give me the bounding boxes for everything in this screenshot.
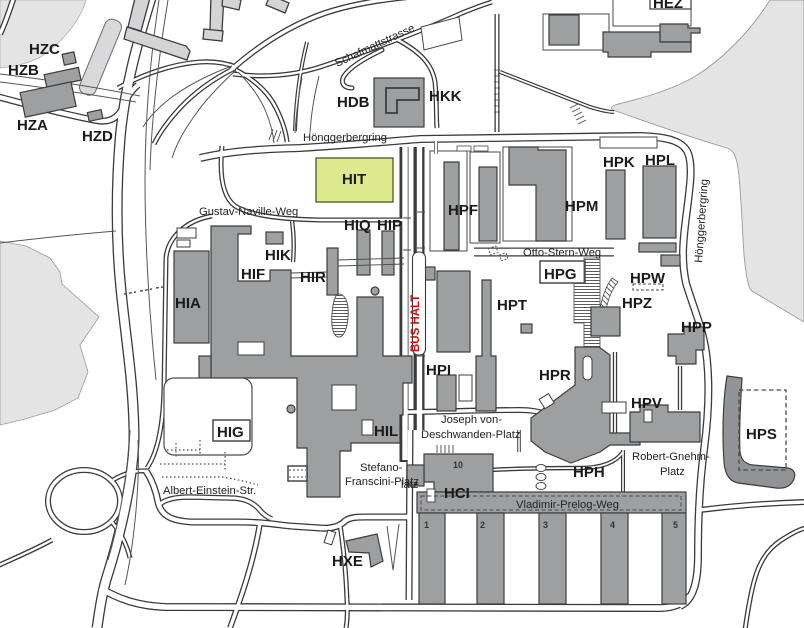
svg-text:HIP: HIP — [377, 217, 402, 234]
svg-text:HIR: HIR — [300, 269, 326, 286]
svg-text:HPH: HPH — [573, 464, 605, 481]
svg-text:HPR: HPR — [539, 367, 571, 384]
svg-text:3: 3 — [543, 520, 548, 530]
svg-text:HZB: HZB — [8, 62, 39, 79]
svg-text:HZA: HZA — [17, 117, 48, 134]
svg-text:Deschwanden-Platz: Deschwanden-Platz — [421, 429, 521, 441]
svg-text:HPF: HPF — [448, 202, 478, 219]
svg-text:HPK: HPK — [603, 154, 635, 171]
svg-text:HIT: HIT — [342, 171, 366, 188]
svg-text:HPT: HPT — [497, 297, 527, 314]
svg-text:HPZ: HPZ — [622, 295, 652, 312]
svg-text:Albert-Einstein-Str.: Albert-Einstein-Str. — [163, 485, 256, 497]
svg-text:HIK: HIK — [265, 247, 291, 264]
svg-text:HIF: HIF — [241, 266, 265, 283]
svg-text:BUS HALT: BUS HALT — [410, 295, 422, 352]
svg-text:HZD: HZD — [82, 128, 113, 145]
svg-text:Hönggerbergring: Hönggerbergring — [303, 132, 387, 144]
svg-text:HPL: HPL — [645, 152, 675, 169]
svg-text:HPW: HPW — [630, 270, 666, 287]
svg-text:Vladimir-Prelog-Weg: Vladimir-Prelog-Weg — [516, 499, 619, 511]
svg-text:Stefano-: Stefano- — [360, 462, 403, 474]
svg-text:4: 4 — [610, 520, 615, 530]
svg-text:latz: latz — [401, 479, 419, 491]
svg-text:HEZ: HEZ — [653, 0, 683, 12]
svg-text:Platz: Platz — [660, 466, 685, 478]
svg-text:HKK: HKK — [429, 88, 462, 105]
svg-text:HPG: HPG — [544, 266, 577, 283]
svg-text:5: 5 — [673, 520, 678, 530]
svg-text:Robert-Gnehm-: Robert-Gnehm- — [632, 451, 710, 463]
svg-text:HPS: HPS — [746, 426, 777, 443]
svg-text:HIA: HIA — [175, 295, 201, 312]
svg-text:2: 2 — [480, 520, 485, 530]
svg-text:HPI: HPI — [426, 362, 451, 379]
svg-text:HPM: HPM — [565, 198, 598, 215]
svg-text:Otto-Stern-Weg: Otto-Stern-Weg — [523, 247, 601, 259]
svg-text:Joseph von-: Joseph von- — [441, 414, 502, 426]
svg-text:HPP: HPP — [681, 319, 712, 336]
svg-text:10: 10 — [453, 460, 463, 470]
svg-text:HXE: HXE — [332, 553, 363, 570]
svg-text:HIQ: HIQ — [344, 217, 371, 234]
svg-text:HDB: HDB — [337, 94, 370, 111]
svg-text:HIL: HIL — [374, 423, 398, 440]
svg-text:HIG: HIG — [217, 424, 244, 441]
svg-text:1: 1 — [424, 520, 429, 530]
svg-text:HZC: HZC — [29, 41, 60, 58]
svg-text:HCI: HCI — [444, 485, 470, 502]
svg-text:HPV: HPV — [631, 395, 662, 412]
svg-text:Gustav-Naville-Weg: Gustav-Naville-Weg — [199, 206, 298, 218]
